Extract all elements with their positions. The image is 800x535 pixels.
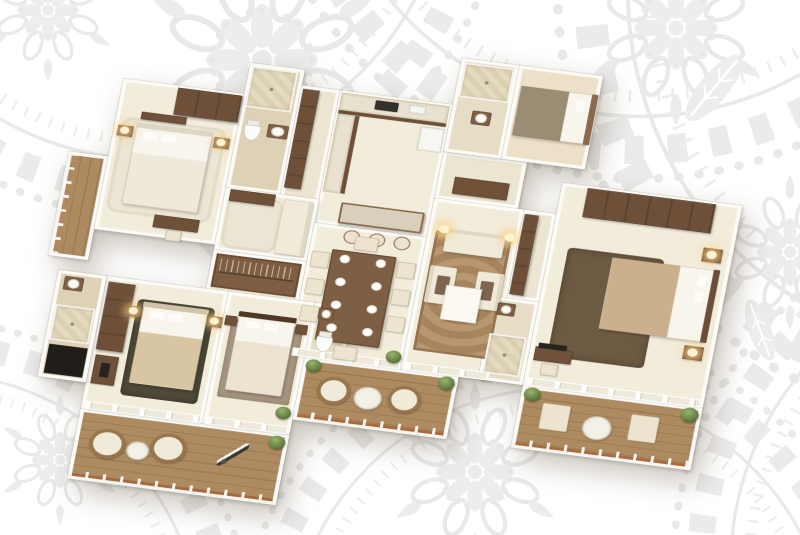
guest-shower [244,66,298,112]
dining-chair-7 [353,236,379,252]
dining-chair-8 [332,345,358,361]
master-shower [482,333,527,377]
dining-chair-2 [304,278,325,296]
guest-basin [266,124,289,140]
guest-bed [122,125,213,213]
deck-telescope [216,440,249,469]
dining-chair-3 [299,305,320,323]
servant-basin [470,110,492,126]
master-balcony-chair-1 [538,403,571,433]
living-coffee-table [440,285,483,324]
servant-shower [458,63,515,104]
scene [0,0,800,535]
bedroom4-nightstand-right [295,324,308,335]
dining-chair-1 [309,251,330,269]
floor-plan-wrapper [0,0,800,535]
dining-chair-4 [395,262,416,280]
guest-desk-chair [164,230,181,242]
master-basin [496,302,516,317]
master-desk-chair [539,363,558,377]
servant-bed [511,86,594,145]
dining-chair-6 [385,316,406,334]
floor-plan [6,11,764,535]
dining-chair-5 [390,289,411,307]
master-balcony-chair-2 [627,414,660,444]
bath5-basin [317,307,335,320]
bath4-shaft [44,344,88,378]
bath4-shower [49,304,96,344]
bedroom4-nightstand-left [224,315,237,326]
master-bed [598,257,716,342]
bath4-basin [63,276,85,292]
kitchen-fridge [416,126,445,153]
